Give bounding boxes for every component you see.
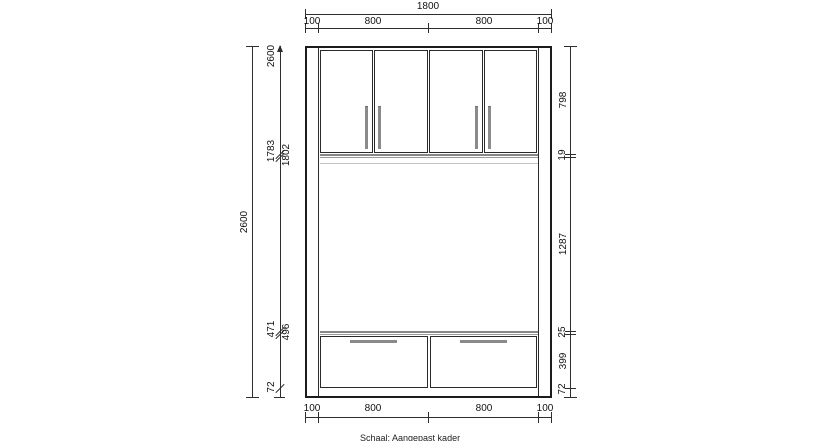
- dim-line-left-total: [252, 46, 253, 398]
- dim-label-left-ordinate-1802: 1802: [282, 144, 292, 166]
- dim-arrow-up: [277, 45, 283, 52]
- upper-shelf-top-edge: [320, 154, 538, 156]
- drawer-1: [320, 336, 428, 388]
- dim-label-top-chain-0: 100: [304, 17, 321, 27]
- dim-line-right-chain: [570, 46, 571, 398]
- cabinet-left-side-panel-line: [318, 48, 319, 396]
- dim-label-right-19: 19: [558, 149, 568, 160]
- dim-line-left-ordinate: [280, 46, 281, 398]
- dim-label-left-ordinate-496: 496: [282, 324, 292, 341]
- door-handle-3: [475, 106, 478, 149]
- door-handle-4: [488, 106, 491, 149]
- dim-tick: [246, 46, 259, 47]
- dim-tick: [428, 412, 429, 423]
- dim-label-left-ordinate-2600: 2600: [267, 45, 277, 67]
- dim-label-bottom-chain-3: 100: [537, 404, 554, 414]
- dim-label-top-chain-3: 100: [537, 17, 554, 27]
- door-handle-1: [365, 106, 368, 149]
- dim-label-right-72: 72: [558, 383, 568, 394]
- dim-label-right-1287: 1287: [559, 233, 569, 255]
- door-handle-2: [378, 106, 381, 149]
- technical-drawing-canvas: 1800 100 800 800 100 100 800 800 100 260…: [0, 0, 814, 441]
- upper-shelf-shadow-line: [320, 163, 538, 164]
- upper-shelf-bottom-edge: [320, 157, 538, 158]
- dim-line-top-total: [305, 14, 552, 15]
- dim-label-top-chain-2: 800: [476, 17, 493, 27]
- dim-label-left-ordinate-72: 72: [267, 381, 277, 392]
- dim-tick: [428, 23, 429, 33]
- dim-label-right-798: 798: [559, 92, 569, 109]
- lower-shelf-top-edge: [320, 331, 538, 333]
- drawer-2: [430, 336, 537, 388]
- dim-label-left-ordinate-1783: 1783: [267, 140, 277, 162]
- dim-label-left-total: 2600: [240, 211, 250, 233]
- dim-tick: [564, 397, 577, 398]
- drawer-handle-1: [350, 340, 397, 343]
- drawer-handle-2: [460, 340, 507, 343]
- dim-tick: [564, 46, 577, 47]
- dim-tick: [246, 397, 259, 398]
- scale-note: Schaal: Aangepast kader: [360, 433, 460, 441]
- lower-shelf-bottom-edge: [320, 334, 538, 335]
- dim-label-top-chain-1: 800: [365, 17, 382, 27]
- upper-door-4: [484, 50, 537, 153]
- dim-label-top-total: 1800: [417, 2, 439, 12]
- cabinet-right-side-panel-line: [538, 48, 539, 396]
- dim-label-bottom-chain-1: 800: [365, 404, 382, 414]
- dim-label-bottom-chain-0: 100: [304, 404, 321, 414]
- dim-label-bottom-chain-2: 800: [476, 404, 493, 414]
- dim-label-right-25: 25: [558, 326, 568, 337]
- upper-door-2: [374, 50, 428, 153]
- dim-tick: [274, 397, 285, 398]
- dim-label-right-399: 399: [559, 353, 569, 370]
- dim-label-left-ordinate-471: 471: [267, 321, 277, 338]
